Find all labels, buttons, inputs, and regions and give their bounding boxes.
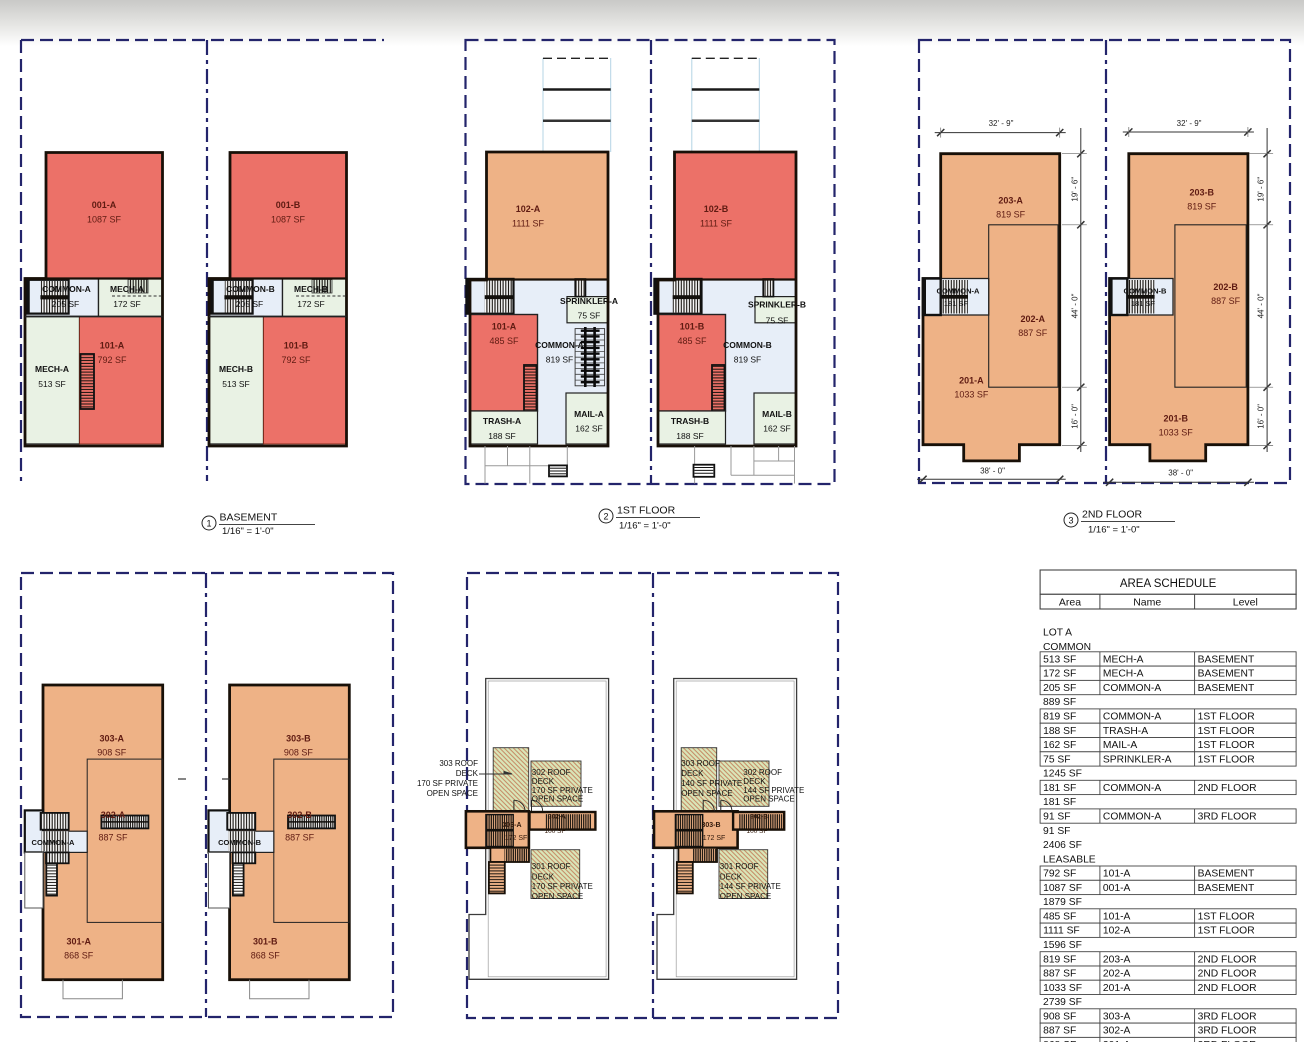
svg-text:MECH-A: MECH-A	[1103, 654, 1144, 665]
svg-text:3RD FLOOR: 3RD FLOOR	[1198, 1026, 1257, 1037]
svg-text:188 SF: 188 SF	[1043, 726, 1076, 737]
svg-text:32' - 9": 32' - 9"	[1177, 119, 1202, 128]
svg-text:205 SF: 205 SF	[236, 299, 263, 309]
svg-text:201-B: 201-B	[1163, 414, 1188, 424]
svg-text:DECK: DECK	[681, 769, 704, 778]
svg-text:485 SF: 485 SF	[1043, 911, 1076, 922]
svg-text:102-A: 102-A	[1103, 926, 1131, 937]
svg-text:TRASH-A: TRASH-A	[1103, 726, 1148, 737]
svg-text:819 SF: 819 SF	[1043, 712, 1076, 723]
svg-text:1111 SF: 1111 SF	[512, 219, 545, 229]
svg-text:2ND FLOOR: 2ND FLOOR	[1198, 969, 1257, 980]
svg-text:513 SF: 513 SF	[38, 379, 65, 389]
svg-text:2ND FLOOR: 2ND FLOOR	[1198, 954, 1257, 965]
svg-text:868 SF: 868 SF	[251, 951, 281, 961]
svg-text:188 SF: 188 SF	[676, 431, 703, 441]
svg-text:COMMON-B: COMMON-B	[1124, 287, 1167, 296]
svg-text:181 SF: 181 SF	[1043, 783, 1076, 794]
svg-text:1/16" = 1'-0": 1/16" = 1'-0"	[619, 521, 671, 532]
svg-text:001-B: 001-B	[276, 200, 301, 210]
svg-text:302-A: 302-A	[548, 814, 566, 821]
svg-text:COMMON-A: COMMON-A	[1103, 812, 1161, 823]
svg-text:162 SF: 162 SF	[763, 424, 790, 434]
svg-text:170 SF PRIVATE: 170 SF PRIVATE	[532, 882, 593, 891]
svg-text:44' - 0": 44' - 0"	[1070, 293, 1079, 318]
svg-text:16' - 0": 16' - 0"	[1070, 404, 1079, 429]
svg-text:1/16" = 1'-0": 1/16" = 1'-0"	[1088, 525, 1140, 536]
svg-text:AREA SCHEDULE: AREA SCHEDULE	[1120, 578, 1217, 590]
svg-text:205 SF: 205 SF	[52, 299, 79, 309]
svg-text:819 SF: 819 SF	[1043, 954, 1076, 965]
svg-text:201-A: 201-A	[959, 376, 984, 386]
svg-text:MECH-B: MECH-B	[294, 284, 328, 294]
svg-text:COMMON-B: COMMON-B	[723, 340, 772, 350]
svg-text:1111 SF: 1111 SF	[1043, 926, 1080, 937]
svg-text:OPEN SPACE: OPEN SPACE	[743, 795, 794, 804]
svg-text:DECK: DECK	[456, 769, 479, 778]
svg-text:TRASH-B: TRASH-B	[671, 416, 709, 426]
svg-text:1033 SF: 1033 SF	[954, 390, 989, 400]
svg-text:1ST FLOOR: 1ST FLOOR	[1198, 740, 1255, 751]
svg-text:1ST FLOOR: 1ST FLOOR	[1198, 911, 1255, 922]
svg-text:172 SF: 172 SF	[505, 835, 528, 842]
svg-text:3RD FLOOR: 3RD FLOOR	[1198, 812, 1257, 823]
svg-text:301-B: 301-B	[253, 937, 278, 947]
svg-text:SPRINKLER-A: SPRINKLER-A	[1103, 754, 1172, 765]
svg-text:MAIL-B: MAIL-B	[762, 409, 792, 419]
svg-text:172 SF: 172 SF	[297, 299, 324, 309]
svg-text:2ND FLOOR: 2ND FLOOR	[1198, 983, 1257, 994]
svg-text:819 SF: 819 SF	[734, 355, 761, 365]
svg-text:101-A: 101-A	[492, 322, 517, 332]
svg-text:181 SF: 181 SF	[944, 299, 969, 308]
svg-text:819 SF: 819 SF	[546, 355, 573, 365]
svg-text:MECH-B: MECH-B	[219, 364, 253, 374]
svg-text:102-B: 102-B	[704, 204, 729, 214]
svg-text:COMMON-B: COMMON-B	[226, 284, 275, 294]
svg-text:303-A: 303-A	[502, 822, 521, 829]
svg-text:513 SF: 513 SF	[222, 379, 249, 389]
svg-text:75 SF: 75 SF	[578, 311, 601, 321]
svg-text:302-B: 302-B	[750, 814, 768, 821]
svg-text:792 SF: 792 SF	[1043, 869, 1076, 880]
svg-text:1/16" = 1'-0": 1/16" = 1'-0"	[222, 526, 274, 537]
svg-text:BASEMENT: BASEMENT	[1198, 883, 1255, 894]
svg-text:38' - 0": 38' - 0"	[1168, 469, 1193, 478]
svg-text:DECK: DECK	[532, 872, 555, 881]
svg-text:DECK: DECK	[743, 777, 766, 786]
svg-text:908 SF: 908 SF	[284, 748, 314, 758]
svg-text:485 SF: 485 SF	[489, 336, 519, 346]
svg-text:LOT A: LOT A	[1043, 628, 1072, 639]
svg-text:205 SF: 205 SF	[1043, 683, 1076, 694]
svg-text:1ST FLOOR: 1ST FLOOR	[1198, 754, 1255, 765]
svg-text:887 SF: 887 SF	[1043, 969, 1076, 980]
svg-text:BASEMENT: BASEMENT	[220, 512, 278, 524]
svg-text:COMMON-A: COMMON-A	[1103, 683, 1161, 694]
svg-text:303-B: 303-B	[701, 822, 720, 829]
svg-text:LEASABLE: LEASABLE	[1043, 854, 1096, 865]
svg-text:OPEN SPACE: OPEN SPACE	[720, 892, 771, 901]
svg-text:792 SF: 792 SF	[281, 355, 311, 365]
svg-text:303-A: 303-A	[1103, 1011, 1131, 1022]
svg-text:792 SF: 792 SF	[97, 355, 127, 365]
svg-text:91 SF: 91 SF	[1043, 812, 1070, 823]
svg-text:301-A: 301-A	[66, 937, 91, 947]
svg-text:302-A: 302-A	[101, 810, 126, 820]
svg-text:COMMON-A: COMMON-A	[32, 838, 75, 847]
svg-text:819 SF: 819 SF	[1187, 202, 1217, 212]
svg-text:887 SF: 887 SF	[98, 833, 128, 843]
svg-text:170 SF PRIVATE: 170 SF PRIVATE	[417, 779, 478, 788]
svg-text:819 SF: 819 SF	[996, 210, 1026, 220]
svg-text:Area: Area	[1059, 597, 1081, 609]
svg-text:1111 SF: 1111 SF	[700, 219, 733, 229]
svg-text:1ST FLOOR: 1ST FLOOR	[1198, 712, 1255, 723]
svg-text:Level: Level	[1233, 597, 1258, 609]
svg-text:75 SF: 75 SF	[766, 316, 789, 326]
svg-text:MAIL-A: MAIL-A	[1103, 740, 1137, 751]
svg-text:485 SF: 485 SF	[677, 336, 707, 346]
svg-text:303 ROOF: 303 ROOF	[439, 759, 478, 768]
svg-text:19' - 6": 19' - 6"	[1070, 177, 1079, 202]
svg-text:COMMON: COMMON	[1043, 642, 1091, 653]
svg-text:887 SF: 887 SF	[1043, 1026, 1076, 1037]
svg-text:44' - 0": 44' - 0"	[1257, 293, 1266, 318]
svg-text:889 SF: 889 SF	[1043, 697, 1076, 708]
svg-text:2: 2	[603, 512, 608, 522]
svg-text:3: 3	[1068, 516, 1073, 526]
svg-text:COMMON-B: COMMON-B	[218, 838, 261, 847]
svg-text:301 ROOF: 301 ROOF	[720, 862, 759, 871]
svg-text:140 SF PRIVATE: 140 SF PRIVATE	[681, 779, 742, 788]
svg-text:868 SF: 868 SF	[64, 951, 94, 961]
svg-text:162 SF: 162 SF	[1043, 740, 1076, 751]
svg-text:101-A: 101-A	[100, 341, 125, 351]
svg-text:887 SF: 887 SF	[285, 833, 315, 843]
svg-text:BASEMENT: BASEMENT	[1198, 869, 1255, 880]
svg-text:19' - 6": 19' - 6"	[1257, 177, 1266, 202]
svg-text:1ST FLOOR: 1ST FLOOR	[617, 505, 676, 517]
svg-text:303-A: 303-A	[100, 734, 125, 744]
svg-text:1087 SF: 1087 SF	[1043, 883, 1082, 894]
svg-text:COMMON-A: COMMON-A	[1103, 783, 1161, 794]
svg-text:162 SF: 162 SF	[575, 424, 602, 434]
svg-text:302-B: 302-B	[287, 810, 312, 820]
svg-text:COMMON-A: COMMON-A	[937, 287, 980, 296]
svg-text:303 ROOF: 303 ROOF	[681, 759, 720, 768]
svg-text:TRASH-A: TRASH-A	[483, 416, 521, 426]
svg-text:DECK: DECK	[720, 872, 743, 881]
svg-text:75 SF: 75 SF	[1043, 754, 1070, 765]
svg-text:101-B: 101-B	[284, 341, 309, 351]
svg-text:DECK: DECK	[532, 777, 555, 786]
svg-text:MECH-A: MECH-A	[110, 284, 144, 294]
svg-text:Name: Name	[1133, 597, 1161, 609]
svg-text:181 SF: 181 SF	[1043, 797, 1076, 808]
svg-text:144 SF PRIVATE: 144 SF PRIVATE	[720, 882, 781, 891]
svg-text:1ST FLOOR: 1ST FLOOR	[1198, 926, 1255, 937]
svg-text:908 SF: 908 SF	[1043, 1011, 1076, 1022]
svg-text:1087 SF: 1087 SF	[271, 215, 306, 225]
svg-text:OPEN SPACE: OPEN SPACE	[681, 789, 732, 798]
svg-text:887 SF: 887 SF	[1211, 296, 1241, 306]
svg-text:908 SF: 908 SF	[97, 748, 127, 758]
svg-text:3RD FLOOR: 3RD FLOOR	[1198, 1011, 1257, 1022]
svg-text:2406 SF: 2406 SF	[1043, 840, 1082, 851]
svg-text:OPEN SPACE: OPEN SPACE	[532, 892, 583, 901]
svg-text:203-A: 203-A	[1103, 954, 1131, 965]
svg-text:301 ROOF: 301 ROOF	[532, 862, 571, 871]
svg-text:COMMON-A: COMMON-A	[42, 284, 91, 294]
svg-text:2739 SF: 2739 SF	[1043, 997, 1082, 1008]
svg-text:181 SF: 181 SF	[1131, 299, 1156, 308]
svg-text:1033 SF: 1033 SF	[1043, 983, 1082, 994]
svg-text:1596 SF: 1596 SF	[1043, 940, 1082, 951]
svg-text:OPEN SPACE: OPEN SPACE	[427, 789, 478, 798]
svg-text:302 ROOF: 302 ROOF	[743, 768, 782, 777]
svg-text:102-A: 102-A	[516, 204, 541, 214]
svg-text:202-A: 202-A	[1103, 969, 1131, 980]
svg-text:202-B: 202-B	[1213, 282, 1238, 292]
svg-text:1: 1	[206, 519, 211, 529]
svg-text:188 SF: 188 SF	[488, 431, 515, 441]
svg-text:16' - 0": 16' - 0"	[1257, 404, 1266, 429]
svg-text:202-A: 202-A	[1021, 314, 1046, 324]
svg-text:887 SF: 887 SF	[1018, 328, 1048, 338]
svg-text:1033 SF: 1033 SF	[1159, 428, 1194, 438]
svg-text:MECH-A: MECH-A	[1103, 669, 1144, 680]
svg-text:2ND FLOOR: 2ND FLOOR	[1198, 783, 1257, 794]
svg-text:1ST FLOOR: 1ST FLOOR	[1198, 726, 1255, 737]
svg-text:COMMON-A: COMMON-A	[1103, 712, 1161, 723]
svg-text:38' - 0": 38' - 0"	[980, 467, 1005, 476]
svg-text:100 SF: 100 SF	[545, 828, 566, 835]
svg-text:001-A: 001-A	[1103, 883, 1131, 894]
svg-text:2ND FLOOR: 2ND FLOOR	[1082, 509, 1143, 521]
svg-text:513 SF: 513 SF	[1043, 654, 1076, 665]
svg-text:91 SF: 91 SF	[1043, 826, 1070, 837]
svg-text:203-B: 203-B	[1190, 188, 1215, 198]
svg-text:302-A: 302-A	[1103, 1026, 1131, 1037]
svg-text:100 SF: 100 SF	[747, 828, 768, 835]
svg-text:001-A: 001-A	[92, 200, 117, 210]
svg-text:BASEMENT: BASEMENT	[1198, 654, 1255, 665]
svg-text:OPEN SPACE: OPEN SPACE	[532, 795, 583, 804]
svg-text:MAIL-A: MAIL-A	[574, 409, 604, 419]
svg-text:1879 SF: 1879 SF	[1043, 897, 1082, 908]
svg-text:172 SF: 172 SF	[113, 299, 140, 309]
svg-text:203-A: 203-A	[998, 196, 1023, 206]
svg-text:MECH-A: MECH-A	[35, 364, 69, 374]
svg-text:BASEMENT: BASEMENT	[1198, 669, 1255, 680]
svg-text:1087 SF: 1087 SF	[87, 215, 122, 225]
svg-text:101-A: 101-A	[1103, 911, 1131, 922]
svg-text:1245 SF: 1245 SF	[1043, 769, 1082, 780]
svg-text:172 SF: 172 SF	[703, 835, 726, 842]
svg-text:302 ROOF: 302 ROOF	[532, 768, 571, 777]
svg-text:101-B: 101-B	[680, 322, 705, 332]
svg-text:201-A: 201-A	[1103, 983, 1131, 994]
svg-text:32' - 9": 32' - 9"	[989, 119, 1014, 128]
svg-text:172 SF: 172 SF	[1043, 669, 1076, 680]
svg-text:BASEMENT: BASEMENT	[1198, 683, 1255, 694]
svg-text:101-A: 101-A	[1103, 869, 1131, 880]
svg-text:COMMON-A: COMMON-A	[535, 340, 584, 350]
svg-text:303-B: 303-B	[286, 734, 311, 744]
